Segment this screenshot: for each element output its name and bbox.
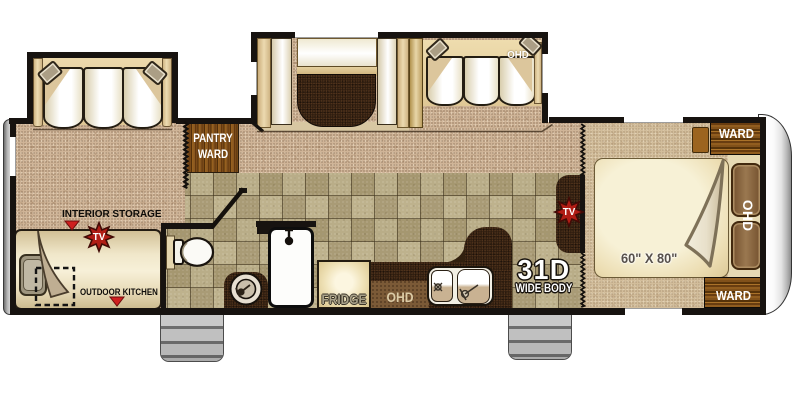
svg-text:TV: TV	[93, 232, 106, 243]
svg-text:TV: TV	[563, 207, 576, 218]
